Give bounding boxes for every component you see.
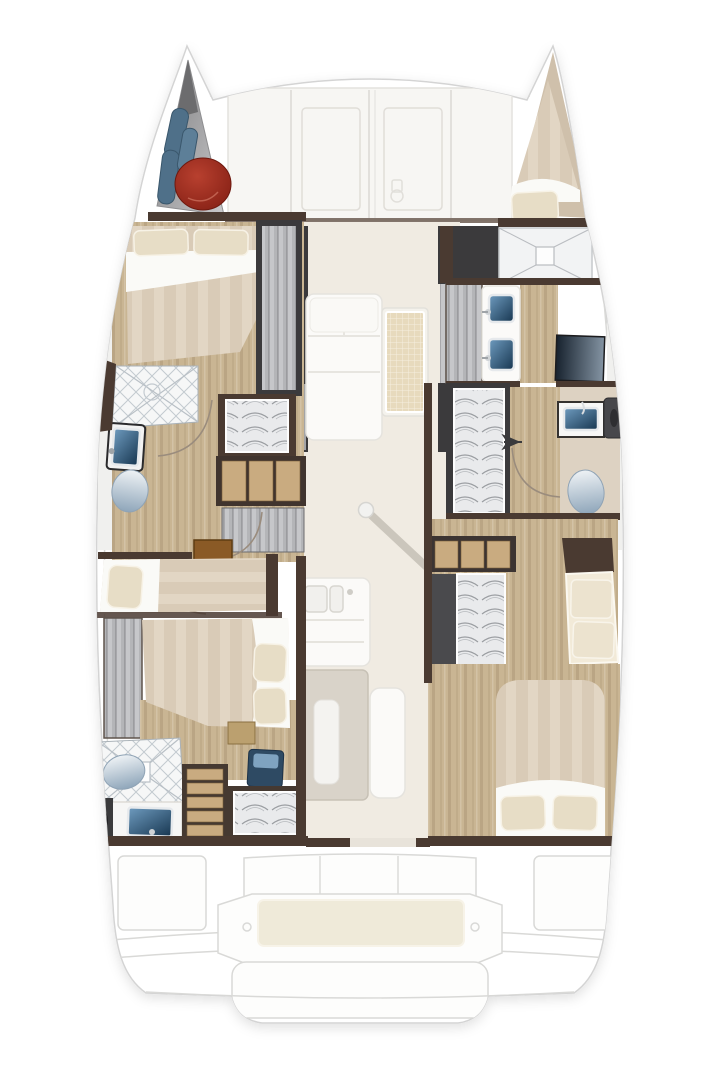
aft-bench-cushion bbox=[258, 900, 464, 946]
cockpit-door bbox=[350, 838, 416, 847]
port-aft-bed-pillow-2 bbox=[253, 687, 286, 724]
starboard-mid-storage bbox=[428, 519, 618, 669]
saloon-table bbox=[382, 308, 428, 416]
galley-faucet-icon bbox=[347, 589, 353, 595]
port-aft-bulkhead bbox=[96, 836, 308, 846]
starboard-aft-double-bed bbox=[428, 664, 620, 840]
port-single-berth-pillow bbox=[107, 565, 144, 609]
port-fwd-bulkhead bbox=[148, 212, 306, 221]
port-forward-double-bed bbox=[126, 226, 258, 364]
swim-platform bbox=[232, 962, 488, 1018]
port-aft-bed-pillow-1 bbox=[253, 643, 287, 683]
starboard-escape-hatch bbox=[440, 226, 592, 284]
port-fwd-bed-pillow-right bbox=[194, 230, 248, 256]
stbd-head-walkway bbox=[510, 387, 560, 517]
stern-side-locker-stbd bbox=[534, 856, 622, 930]
stbd-tv bbox=[555, 335, 605, 382]
stbd-aft-pillow-1 bbox=[500, 795, 545, 831]
port-hull-steps bbox=[222, 508, 304, 552]
port-aft-single-berth bbox=[96, 554, 282, 618]
port-nightstand-wood bbox=[194, 540, 232, 560]
island-worktop-inset bbox=[314, 700, 339, 784]
galley-bench bbox=[370, 688, 405, 798]
galley-sink-basin bbox=[305, 586, 327, 612]
port-wardrobe-garments bbox=[226, 400, 288, 452]
port-aft-seat-blue bbox=[247, 749, 284, 788]
floor-plan-page bbox=[0, 0, 720, 1080]
saloon-sofa bbox=[306, 294, 382, 440]
port-aft-wardrobe bbox=[234, 792, 298, 834]
stbd-fwd-bulkhead bbox=[498, 218, 594, 227]
port-aft-nightstand bbox=[228, 722, 255, 744]
stbd-aft-corner-wall bbox=[562, 538, 614, 574]
starboard-head bbox=[446, 383, 624, 520]
stbd-aft-pillow-2 bbox=[552, 795, 597, 831]
stern-side-locker-port bbox=[118, 856, 206, 930]
stbd-wardrobe-2 bbox=[457, 574, 505, 666]
port-aft-head bbox=[96, 738, 184, 844]
stbd-sink-1 bbox=[489, 295, 514, 322]
aft-bench bbox=[218, 894, 502, 966]
stbd-head-fixture-dark bbox=[604, 398, 624, 438]
stbd-corridor-floor bbox=[520, 284, 558, 383]
port-fwd-sink bbox=[106, 423, 145, 471]
port-hull bbox=[94, 220, 308, 846]
red-bag-icon bbox=[175, 158, 231, 210]
stbd-head-sink bbox=[564, 408, 598, 430]
stbd-sink-2 bbox=[489, 339, 514, 370]
port-fwd-bed-pillow-left bbox=[134, 229, 189, 256]
port-storage bbox=[216, 394, 306, 552]
stbd-aft-bulkhead bbox=[428, 836, 620, 846]
forward-cockpit-lounge bbox=[225, 88, 515, 223]
port-aft-side-shelf bbox=[104, 618, 142, 738]
catamaran-floor-plan bbox=[0, 0, 720, 1080]
stbd-bench-seat bbox=[566, 572, 618, 664]
stbd-wardrobe-large bbox=[454, 389, 504, 513]
stbd-side-shelf bbox=[446, 284, 482, 383]
